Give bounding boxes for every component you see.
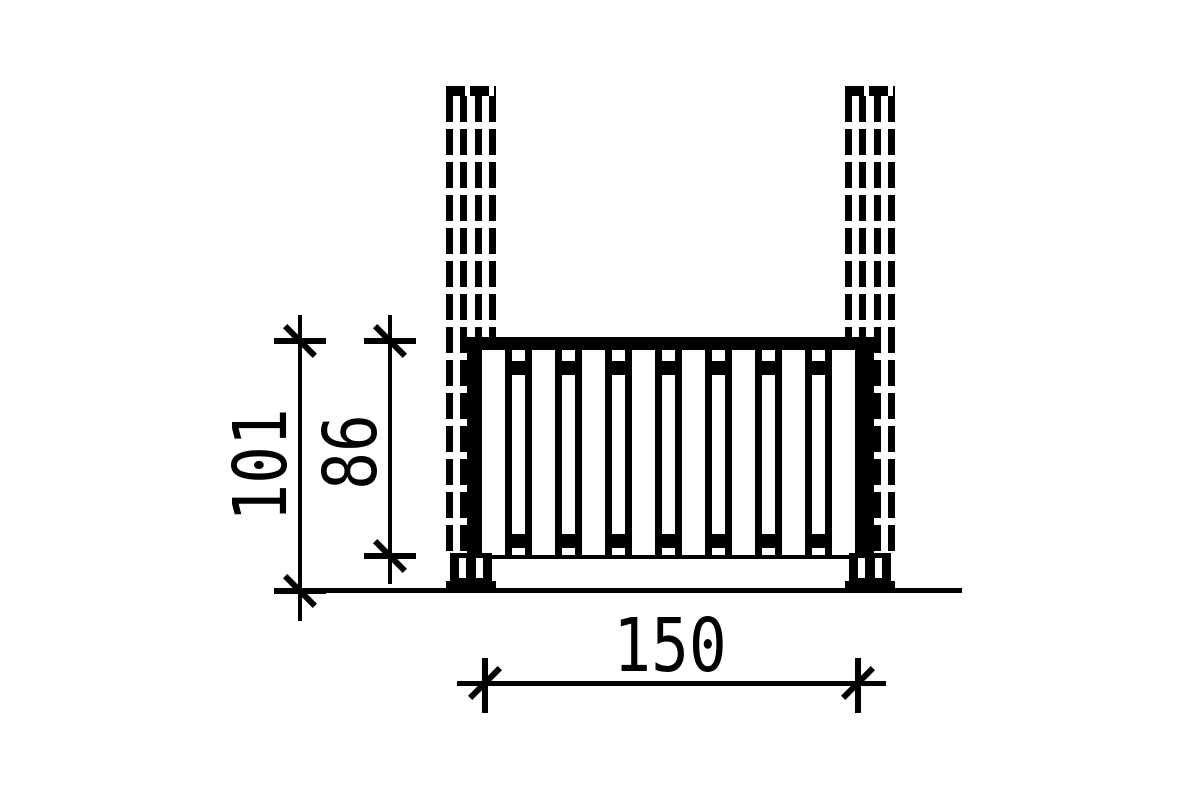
slat-separator bbox=[525, 350, 532, 556]
narrow-slat-bottom-block bbox=[762, 534, 775, 548]
anchor-body bbox=[849, 553, 891, 584]
anchor-slit bbox=[476, 558, 483, 578]
anchor-slit bbox=[858, 558, 865, 578]
slat-separator bbox=[605, 350, 612, 556]
dimension-overall-height-label: 101 bbox=[224, 408, 298, 522]
slat-separator bbox=[705, 350, 712, 556]
ground-line bbox=[285, 588, 962, 593]
slat-separator bbox=[805, 350, 812, 556]
post-dashed-line bbox=[446, 96, 453, 556]
narrow-slat-top-block bbox=[662, 361, 675, 375]
anchor-slit bbox=[875, 558, 882, 578]
slat-separator bbox=[775, 350, 782, 556]
balustrade-technical-drawing: 101 86 150 bbox=[0, 0, 1200, 800]
bottom-plank bbox=[467, 555, 874, 590]
narrow-slat-bottom-block bbox=[612, 534, 625, 548]
narrow-slat-bottom-block bbox=[712, 534, 725, 548]
narrow-slat-top-block bbox=[512, 361, 525, 375]
slat-separator bbox=[675, 350, 682, 556]
railing-frame-left-edge bbox=[467, 350, 482, 556]
narrow-slat-top-block bbox=[612, 361, 625, 375]
slat-separator bbox=[825, 350, 832, 556]
narrow-slat-top-block bbox=[712, 361, 725, 375]
narrow-slat-top-block bbox=[562, 361, 575, 375]
dimension-railing-height-label: 86 bbox=[314, 414, 388, 490]
slat-separator bbox=[575, 350, 582, 556]
railing bbox=[467, 337, 874, 556]
narrow-slat-top-block bbox=[762, 361, 775, 375]
post-anchor-right bbox=[845, 553, 895, 592]
narrow-slat-bottom-block bbox=[662, 534, 675, 548]
post-dashed-line bbox=[888, 96, 895, 556]
slat-separator bbox=[725, 350, 732, 556]
post-dashed-line bbox=[460, 96, 467, 556]
anchor-slit bbox=[459, 558, 466, 578]
anchor-body bbox=[450, 553, 492, 584]
slat-separator bbox=[625, 350, 632, 556]
narrow-slat-bottom-block bbox=[562, 534, 575, 548]
slat-separator bbox=[655, 350, 662, 556]
dimension-width-label: 150 bbox=[613, 609, 727, 683]
post-left-cap bbox=[446, 86, 496, 96]
slat-separator bbox=[555, 350, 562, 556]
railing-slat-panel bbox=[467, 350, 874, 556]
narrow-slat-bottom-block bbox=[512, 534, 525, 548]
railing-top-rail bbox=[467, 337, 874, 350]
narrow-slat-top-block bbox=[812, 361, 825, 375]
narrow-slat-bottom-block bbox=[812, 534, 825, 548]
slat-separator bbox=[755, 350, 762, 556]
railing-frame-right-edge bbox=[855, 350, 874, 556]
post-anchor-left bbox=[446, 553, 496, 592]
post-dashed-line bbox=[874, 96, 881, 556]
slat-separator bbox=[505, 350, 512, 556]
post-right-cap bbox=[845, 86, 895, 96]
